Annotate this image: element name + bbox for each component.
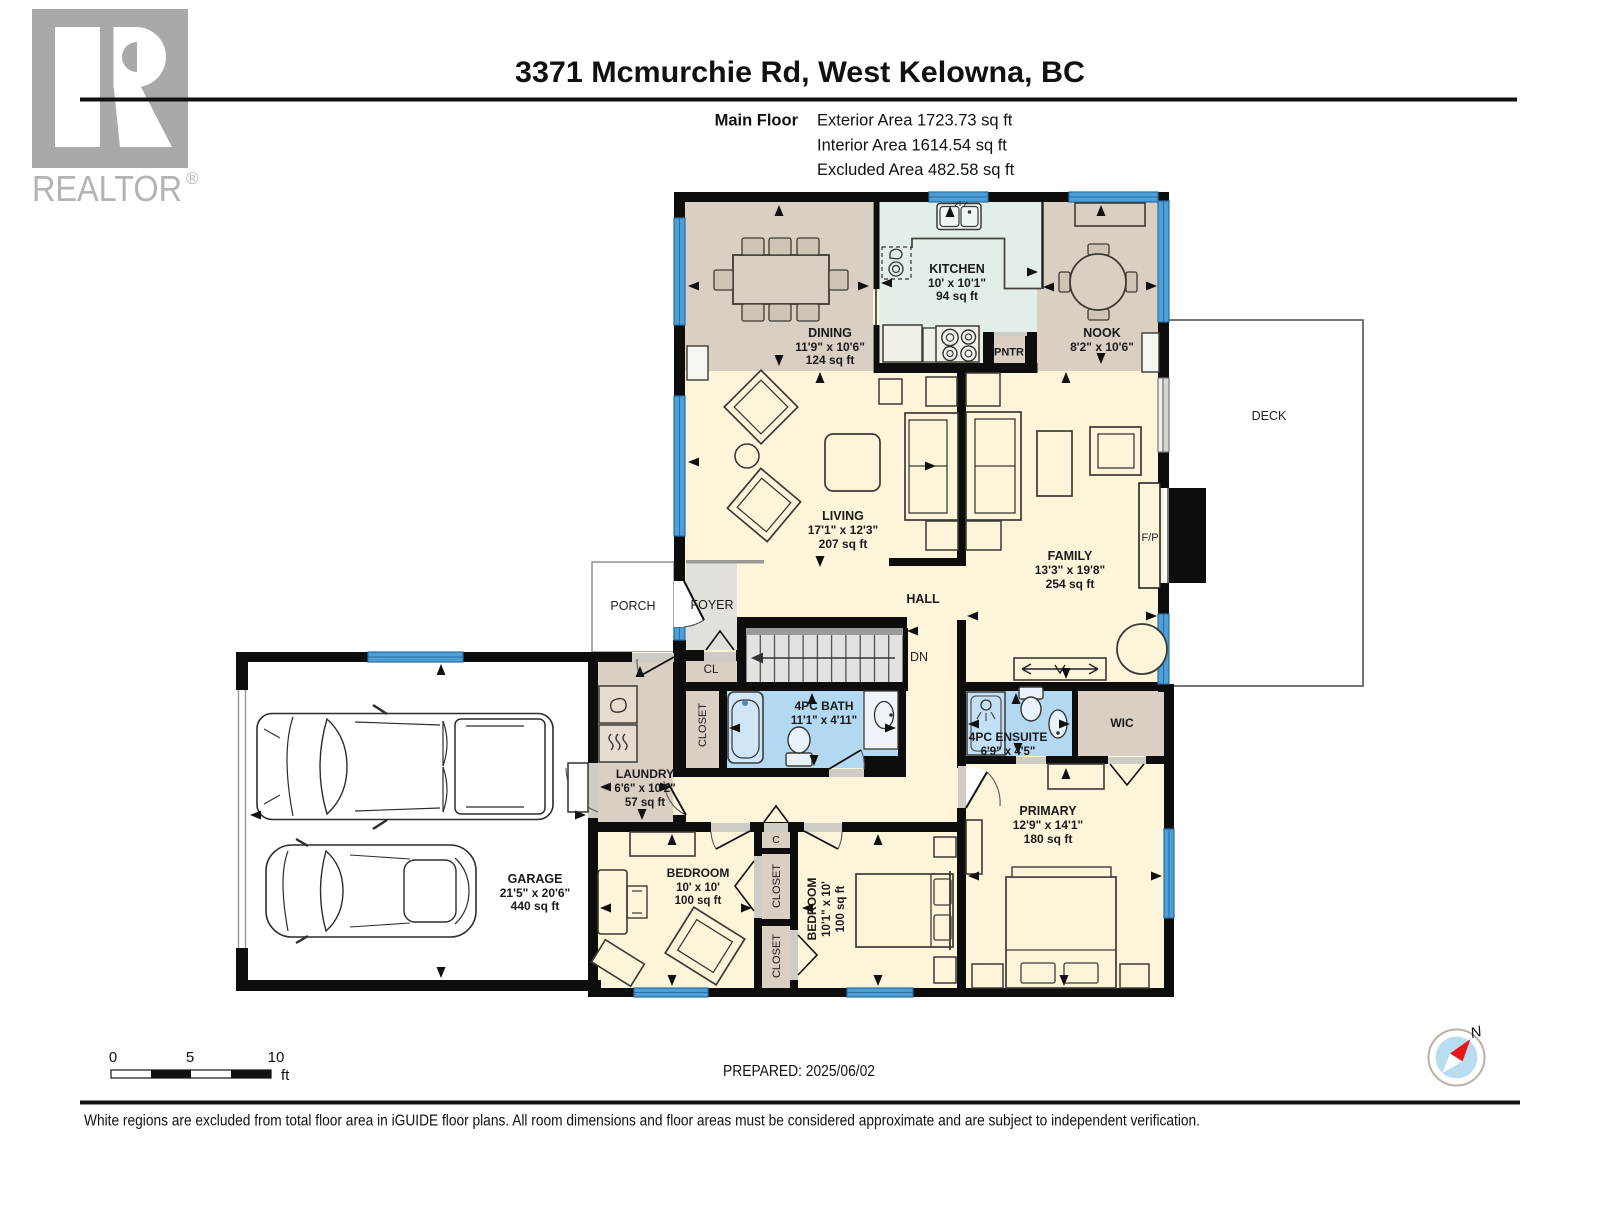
svg-text:PORCH: PORCH — [610, 599, 655, 613]
svg-text:LIVING: LIVING — [822, 509, 864, 523]
svg-text:3371 Mcmurchie Rd, West Kelown: 3371 Mcmurchie Rd, West Kelowna, BC — [515, 56, 1085, 89]
svg-text:12'9" x 14'1": 12'9" x 14'1" — [1013, 818, 1083, 832]
svg-text:207 sq ft: 207 sq ft — [819, 537, 868, 551]
svg-text:WIC: WIC — [1110, 716, 1134, 730]
svg-text:Excluded Area 482.58 sq ft: Excluded Area 482.58 sq ft — [817, 161, 1015, 179]
svg-text:ft: ft — [281, 1067, 290, 1084]
svg-text:FAMILY: FAMILY — [1048, 549, 1093, 563]
svg-text:C: C — [772, 834, 780, 846]
svg-text:DN: DN — [910, 650, 928, 664]
svg-text:17'1" x 12'3": 17'1" x 12'3" — [808, 523, 878, 537]
svg-text:124 sq ft: 124 sq ft — [806, 353, 855, 367]
svg-text:CL: CL — [704, 664, 719, 676]
svg-text:21'5" x 20'6": 21'5" x 20'6" — [500, 886, 570, 900]
svg-text:5: 5 — [186, 1049, 194, 1066]
svg-text:8'2" x 10'6": 8'2" x 10'6" — [1070, 340, 1134, 354]
svg-text:LAUNDRY: LAUNDRY — [616, 767, 674, 781]
svg-text:®: ® — [186, 169, 199, 188]
svg-text:4PC ENSUITE: 4PC ENSUITE — [969, 730, 1048, 744]
svg-text:Main Floor: Main Floor — [715, 112, 799, 130]
svg-text:4PC BATH: 4PC BATH — [794, 699, 853, 713]
svg-text:10' x 10'1": 10' x 10'1" — [928, 276, 986, 290]
svg-text:White regions are excluded fro: White regions are excluded from total fl… — [84, 1113, 1200, 1130]
svg-text:PRIMARY: PRIMARY — [1019, 804, 1077, 818]
svg-text:254 sq ft: 254 sq ft — [1046, 577, 1095, 591]
svg-text:6'6" x 10'2": 6'6" x 10'2" — [614, 783, 675, 795]
svg-text:Interior Area 1614.54 sq ft: Interior Area 1614.54 sq ft — [817, 137, 1007, 155]
svg-text:180 sq ft: 180 sq ft — [1024, 832, 1073, 846]
svg-text:13'3" x 19'8": 13'3" x 19'8" — [1035, 563, 1105, 577]
svg-text:Exterior Area 1723.73 sq ft: Exterior Area 1723.73 sq ft — [817, 112, 1013, 130]
svg-text:DECK: DECK — [1252, 409, 1287, 423]
svg-text:10: 10 — [268, 1049, 285, 1066]
svg-text:F/P: F/P — [1141, 532, 1158, 544]
svg-text:PNTR: PNTR — [994, 347, 1024, 359]
svg-text:CLOSET: CLOSET — [697, 703, 709, 747]
svg-text:NOOK: NOOK — [1083, 326, 1121, 340]
svg-text:10'1" x 10': 10'1" x 10' — [821, 881, 833, 937]
svg-text:CLOSET: CLOSET — [771, 934, 783, 978]
svg-text:REALTOR: REALTOR — [32, 168, 182, 209]
svg-text:10' x 10': 10' x 10' — [676, 882, 720, 894]
svg-text:FOYER: FOYER — [690, 598, 733, 612]
svg-text:57 sq ft: 57 sq ft — [625, 797, 665, 809]
svg-text:11'9" x 10'6": 11'9" x 10'6" — [795, 340, 865, 354]
svg-text:94 sq ft: 94 sq ft — [936, 289, 978, 303]
svg-text:DINING: DINING — [808, 326, 852, 340]
svg-text:GARAGE: GARAGE — [508, 872, 563, 886]
svg-text:0: 0 — [109, 1049, 117, 1066]
svg-text:PREPARED: 2025/06/02: PREPARED: 2025/06/02 — [723, 1063, 875, 1080]
svg-text:BEDROOM: BEDROOM — [667, 866, 730, 880]
svg-text:100 sq ft: 100 sq ft — [835, 886, 847, 933]
svg-text:HALL: HALL — [906, 592, 940, 606]
svg-text:100 sq ft: 100 sq ft — [675, 895, 722, 907]
svg-text:440 sq ft: 440 sq ft — [511, 899, 560, 913]
svg-text:6'9" x 4'5": 6'9" x 4'5" — [981, 746, 1036, 758]
svg-text:KITCHEN: KITCHEN — [929, 262, 985, 276]
svg-text:11'1" x 4'11": 11'1" x 4'11" — [791, 715, 857, 727]
svg-text:CLOSET: CLOSET — [771, 864, 783, 908]
